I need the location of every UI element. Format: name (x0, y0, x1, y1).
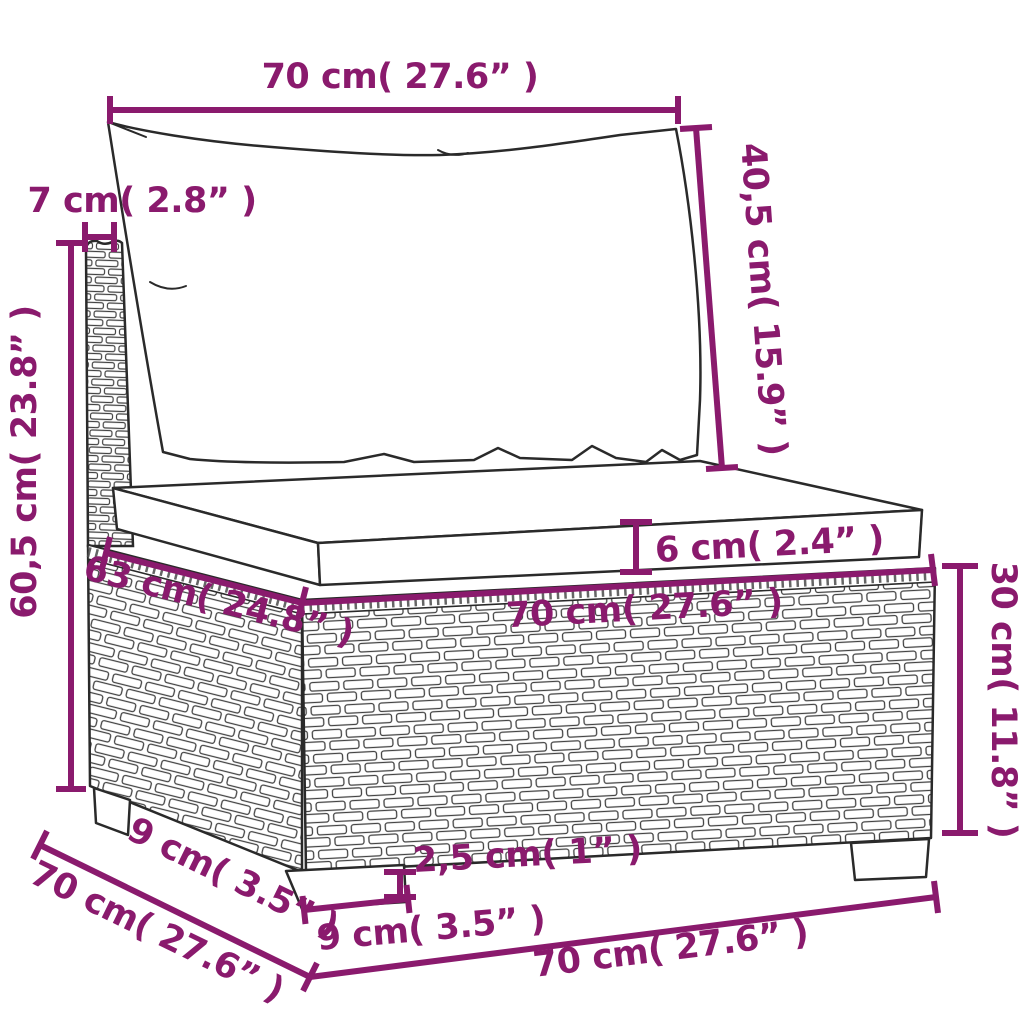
back-cushion (108, 122, 700, 463)
dim-total-height: 60,5 cm( 23.8” ) (5, 243, 86, 789)
dim-back-post-width-label: 7 cm( 2.8” ) (27, 181, 256, 221)
dim-base-height: 30 cm( 11.8” ) (942, 562, 1023, 839)
dim-back-width-label: 70 cm( 27.6” ) (262, 57, 539, 97)
dimension-diagram: 70 cm( 27.6” ) 40,5 cm( 15.9” ) 7 cm( 2.… (0, 0, 1024, 1024)
foot-front-right (851, 839, 929, 880)
sofa-dimension-drawing: 70 cm( 27.6” ) 40,5 cm( 15.9” ) 7 cm( 2.… (0, 0, 1024, 1024)
dim-back-cushion-height-label: 40,5 cm( 15.9” ) (732, 141, 794, 457)
dim-base-width-bottom-label: 70 cm( 27.6” ) (531, 912, 811, 985)
dim-tick (934, 881, 938, 913)
dim-tick (931, 554, 935, 586)
back-cushion-body (108, 122, 700, 463)
dim-base-height-label: 30 cm( 11.8” ) (983, 562, 1023, 839)
dim-total-height-label: 60,5 cm( 23.8” ) (5, 305, 45, 618)
dim-back-width: 70 cm( 27.6” ) (110, 57, 678, 124)
